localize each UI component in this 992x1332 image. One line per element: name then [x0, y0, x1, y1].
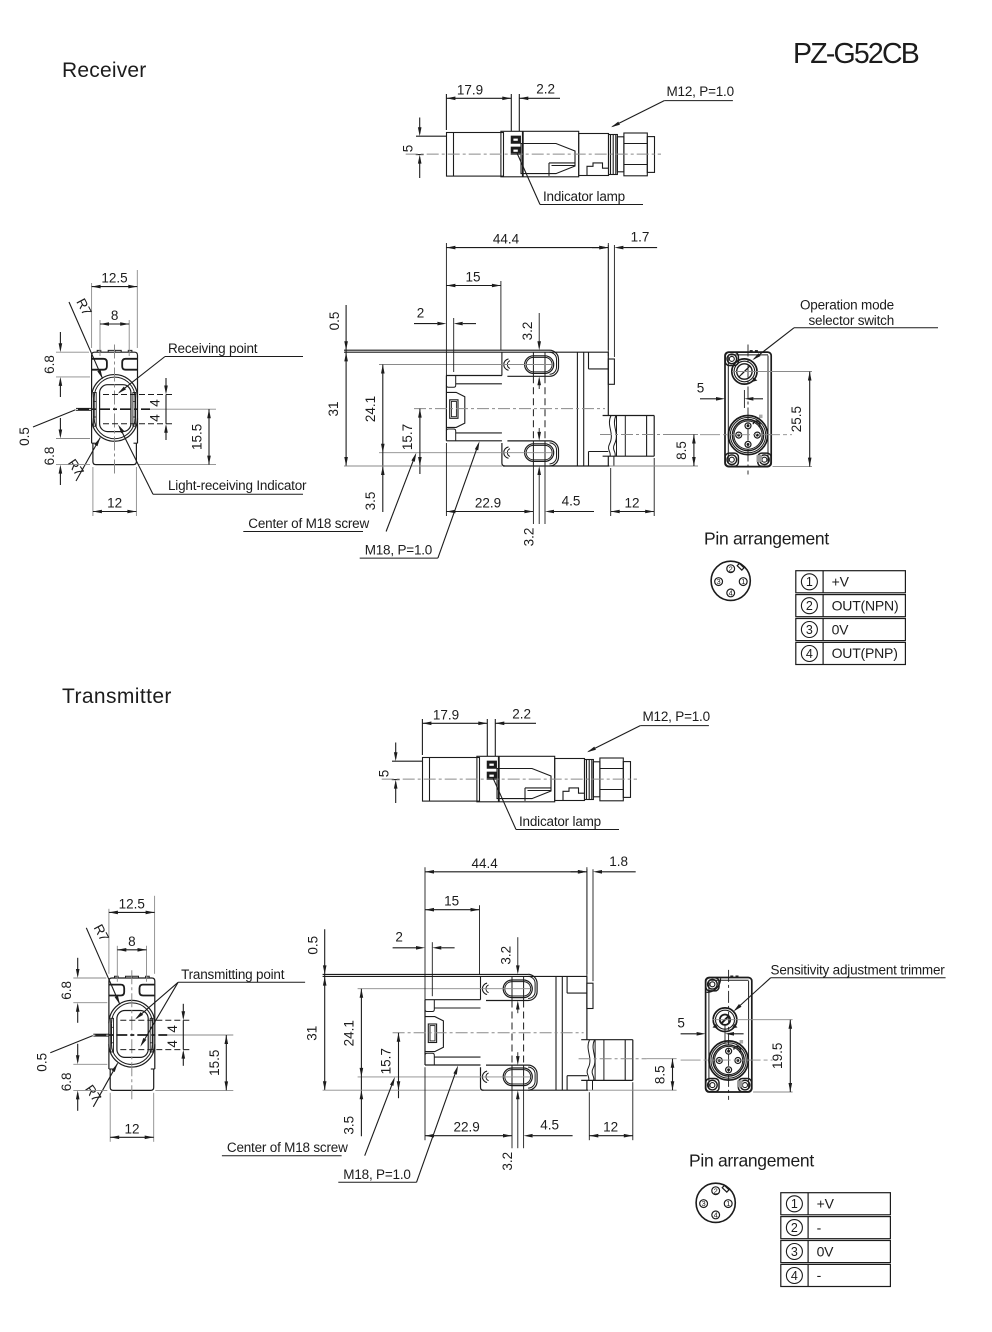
svg-text:15: 15	[444, 894, 459, 909]
svg-text:1: 1	[741, 577, 745, 586]
svg-text:4: 4	[714, 1211, 718, 1220]
svg-text:0V: 0V	[832, 621, 850, 637]
svg-text:6.8: 6.8	[42, 355, 57, 374]
svg-text:M18, P=1.0: M18, P=1.0	[365, 543, 432, 558]
svg-text:2: 2	[791, 1221, 798, 1235]
svg-text:M12, P=1.0: M12, P=1.0	[643, 709, 710, 724]
svg-text:12.5: 12.5	[101, 271, 127, 286]
svg-text:25.5: 25.5	[789, 406, 804, 432]
svg-text:4: 4	[148, 414, 163, 422]
svg-text:1: 1	[791, 1197, 798, 1211]
svg-text:31: 31	[305, 1026, 320, 1041]
svg-text:8: 8	[128, 934, 136, 949]
svg-text:6.8: 6.8	[59, 981, 74, 1000]
svg-text:44.4: 44.4	[471, 856, 498, 871]
svg-text:3.5: 3.5	[363, 492, 378, 511]
svg-text:15.5: 15.5	[207, 1050, 222, 1076]
svg-text:22.9: 22.9	[475, 496, 501, 511]
svg-text:2: 2	[395, 930, 403, 945]
svg-text:1: 1	[726, 1199, 730, 1208]
svg-text:12: 12	[603, 1120, 618, 1135]
svg-text:M18, P=1.0: M18, P=1.0	[343, 1167, 410, 1182]
svg-text:12: 12	[624, 496, 639, 511]
svg-text:Operation mode: Operation mode	[800, 298, 894, 313]
svg-text:+V: +V	[817, 1196, 835, 1212]
svg-text:4: 4	[729, 589, 733, 598]
svg-text:Indicator lamp: Indicator lamp	[519, 814, 601, 829]
svg-text:4: 4	[806, 647, 813, 661]
svg-text:+V: +V	[832, 574, 850, 590]
svg-text:Center of M18 screw: Center of M18 screw	[227, 1140, 348, 1155]
svg-text:0.5: 0.5	[327, 312, 342, 331]
svg-text:Pin arrangement: Pin arrangement	[689, 1151, 814, 1171]
svg-text:5: 5	[697, 381, 705, 396]
svg-text:15.7: 15.7	[400, 424, 415, 450]
svg-text:0V: 0V	[817, 1243, 835, 1259]
svg-text:31: 31	[326, 401, 341, 416]
svg-text:2: 2	[806, 599, 813, 613]
svg-text:4: 4	[148, 399, 163, 407]
svg-text:24.1: 24.1	[342, 1020, 357, 1046]
svg-text:3.2: 3.2	[499, 946, 514, 965]
svg-text:Transmitter: Transmitter	[62, 685, 172, 708]
svg-text:Indicator lamp: Indicator lamp	[543, 189, 625, 204]
svg-text:22.9: 22.9	[453, 1120, 479, 1135]
svg-text:15: 15	[465, 270, 480, 285]
svg-text:Pin arrangement: Pin arrangement	[704, 529, 829, 549]
svg-text:Light-receiving Indicator: Light-receiving Indicator	[168, 478, 307, 493]
svg-text:3.2: 3.2	[520, 322, 535, 341]
svg-text:8: 8	[111, 308, 119, 323]
svg-text:2.2: 2.2	[512, 706, 531, 721]
svg-text:-: -	[817, 1219, 822, 1235]
svg-text:17.9: 17.9	[457, 82, 483, 97]
svg-text:2: 2	[729, 564, 733, 573]
svg-text:3: 3	[806, 623, 813, 637]
svg-text:OUT(NPN): OUT(NPN)	[832, 598, 899, 614]
svg-text:19.5: 19.5	[770, 1043, 785, 1069]
svg-text:4.5: 4.5	[540, 1118, 559, 1133]
svg-text:Transmitting point: Transmitting point	[181, 967, 285, 982]
svg-text:4.5: 4.5	[562, 494, 581, 509]
svg-text:Sensitivity adjustment trimmer: Sensitivity adjustment trimmer	[771, 963, 946, 978]
svg-text:4: 4	[165, 1040, 180, 1048]
svg-text:Receiving point: Receiving point	[168, 341, 258, 356]
svg-text:12: 12	[107, 496, 122, 511]
svg-text:15.5: 15.5	[190, 424, 205, 450]
svg-text:Center of M18 screw: Center of M18 screw	[248, 516, 369, 531]
svg-text:Receiver: Receiver	[62, 59, 146, 82]
svg-text:3: 3	[717, 577, 721, 586]
svg-text:8.5: 8.5	[674, 441, 689, 460]
svg-text:M12, P=1.0: M12, P=1.0	[667, 84, 734, 99]
svg-text:1: 1	[806, 575, 813, 589]
svg-text:3: 3	[791, 1245, 798, 1259]
svg-text:17.9: 17.9	[433, 707, 459, 722]
svg-text:2.2: 2.2	[536, 81, 555, 96]
svg-text:24.1: 24.1	[363, 396, 378, 422]
svg-text:0.5: 0.5	[34, 1053, 49, 1072]
svg-text:1.7: 1.7	[631, 230, 650, 245]
svg-text:0.5: 0.5	[306, 936, 321, 955]
svg-text:PZ-G52CB: PZ-G52CB	[793, 38, 919, 70]
svg-text:8.5: 8.5	[653, 1065, 668, 1084]
svg-text:selector switch: selector switch	[808, 313, 894, 328]
svg-text:4: 4	[165, 1025, 180, 1033]
svg-text:2: 2	[417, 306, 425, 321]
svg-text:3: 3	[702, 1199, 706, 1208]
svg-text:5: 5	[401, 145, 416, 153]
svg-text:2: 2	[714, 1186, 718, 1195]
svg-text:44.4: 44.4	[493, 232, 520, 247]
svg-text:12: 12	[124, 1121, 139, 1136]
svg-text:5: 5	[677, 1016, 685, 1031]
svg-text:3.2: 3.2	[522, 528, 537, 547]
svg-text:3.2: 3.2	[500, 1152, 515, 1171]
svg-text:-: -	[817, 1267, 822, 1283]
svg-text:OUT(PNP): OUT(PNP)	[832, 645, 898, 661]
svg-text:15.7: 15.7	[379, 1048, 394, 1074]
svg-text:6.8: 6.8	[59, 1072, 74, 1091]
svg-text:1.8: 1.8	[609, 854, 628, 869]
svg-text:5: 5	[377, 770, 392, 778]
svg-text:6.8: 6.8	[42, 447, 57, 466]
svg-text:3.5: 3.5	[342, 1116, 357, 1135]
svg-text:12.5: 12.5	[119, 896, 145, 911]
svg-text:0.5: 0.5	[17, 427, 32, 446]
svg-text:4: 4	[791, 1269, 798, 1283]
